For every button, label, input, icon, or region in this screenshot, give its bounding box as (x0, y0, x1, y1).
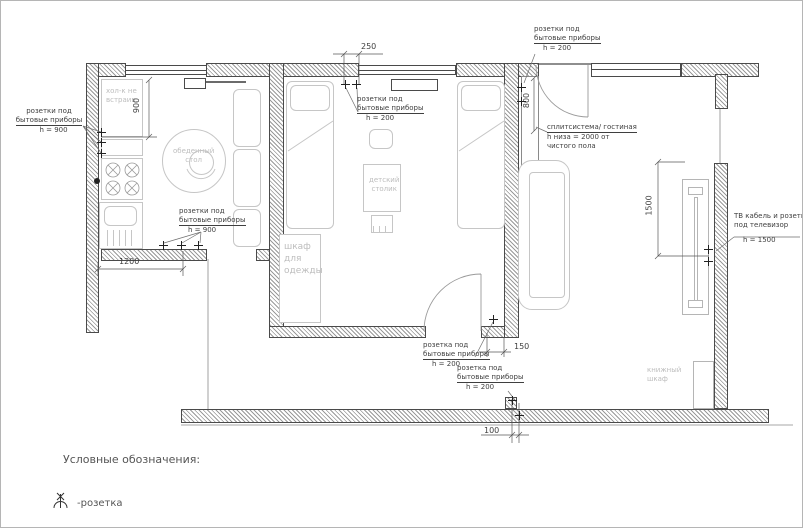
dim-100: 100 (484, 426, 499, 435)
furniture-details (187, 121, 504, 179)
bookcase-label: книжныйшкаф (647, 366, 681, 384)
annotation-nursery-sockets: розетки под бытовые приборы h = 200 (357, 95, 424, 123)
door-arcs (424, 65, 588, 331)
legend-socket-label: -розетка (77, 498, 123, 509)
socket-icon (194, 241, 203, 250)
floor-plan: хол-к невстраив. обеденныйстол детскийст… (0, 0, 803, 528)
dim-250: 250 (361, 42, 376, 51)
dining-table-label: обеденныйстол (173, 147, 214, 165)
socket-icon (489, 315, 498, 324)
dim-1200: 1200 (119, 257, 139, 266)
dim-900: 900 (132, 98, 141, 113)
socket-icon (177, 241, 186, 250)
dim-1500: 1500 (645, 195, 654, 215)
annotation-kitchen-bottom-sockets: розетки под бытовые приборы h = 900 (179, 207, 246, 235)
socket-icon (97, 128, 106, 137)
socket-icon (515, 411, 524, 420)
socket-icon (704, 257, 713, 266)
wardrobe-label: шкафдляодежды (284, 241, 323, 277)
socket-icon (517, 97, 526, 106)
socket-icon (97, 138, 106, 147)
annotation-tv-socket: ТВ кабель и розетка под телевизор h = 15… (734, 212, 803, 245)
socket-icon (159, 241, 168, 250)
socket-icon (508, 396, 517, 405)
kids-table-label: детскийстолик (369, 176, 399, 194)
annotation-kitchen-wall-sockets: розетки под бытовые приборы h = 900 (15, 107, 83, 135)
legend-title: Условные обозначения: (63, 453, 200, 466)
socket-icon (517, 83, 526, 92)
socket-icon (704, 245, 713, 254)
socket-icon (352, 80, 361, 89)
legend-socket-icon (51, 491, 71, 513)
annotation-split-system: сплитсистема/ гостиная h низа = 2000 от … (547, 123, 637, 151)
socket-icon (97, 149, 106, 158)
annotation-living-top-sockets: розетки под бытовые приборы h = 200 (534, 25, 601, 53)
annotation-bottom-wall-socket: розетка под бытовые приборы h = 200 (457, 364, 524, 392)
socket-icon (341, 80, 350, 89)
wall-point (94, 178, 100, 184)
dim-150: 150 (514, 342, 529, 351)
